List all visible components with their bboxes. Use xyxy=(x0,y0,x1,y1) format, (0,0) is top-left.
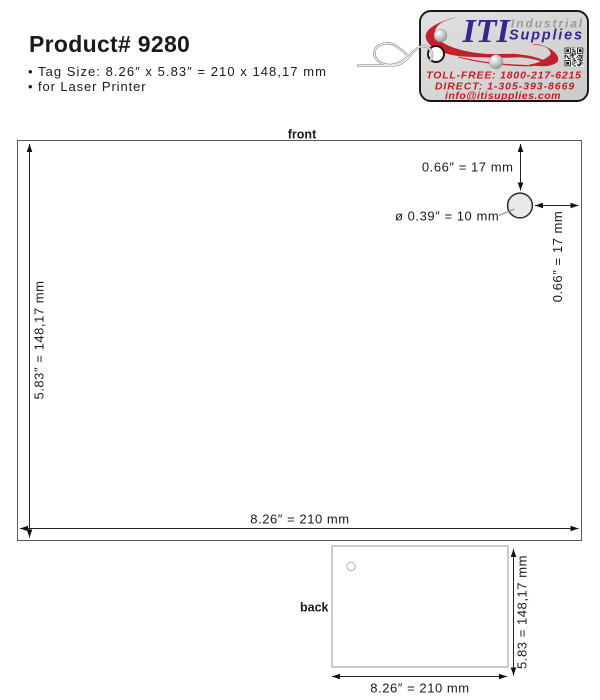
svg-text:front: front xyxy=(288,128,317,142)
svg-text:Product# 9280: Product# 9280 xyxy=(29,31,190,57)
svg-text:8.26″ = 210 mm: 8.26″ = 210 mm xyxy=(250,512,349,527)
svg-text:back: back xyxy=(300,601,329,615)
svg-text:info@itisupplies.com: info@itisupplies.com xyxy=(445,90,561,102)
svg-text:• for Laser Printer: • for Laser Printer xyxy=(28,79,146,94)
svg-text:Supplies: Supplies xyxy=(509,28,584,44)
svg-text:ø 0.39″ = 10 mm: ø 0.39″ = 10 mm xyxy=(395,209,499,224)
svg-text:5.83″ = 148,17 mm: 5.83″ = 148,17 mm xyxy=(32,280,47,399)
svg-text:8.26″ = 210 mm: 8.26″ = 210 mm xyxy=(370,681,469,696)
svg-text:• Tag Size: 8.26″ x 5.83″ = 21: • Tag Size: 8.26″ x 5.83″ = 210 x 148,17… xyxy=(28,64,327,79)
svg-text:0.66″ = 17 mm: 0.66″ = 17 mm xyxy=(550,211,565,303)
svg-text:ITI: ITI xyxy=(462,13,512,50)
svg-text:0.66″ = 17 mm: 0.66″ = 17 mm xyxy=(422,160,514,175)
svg-text:5.83 = 148,17 mm: 5.83 = 148,17 mm xyxy=(515,555,530,669)
